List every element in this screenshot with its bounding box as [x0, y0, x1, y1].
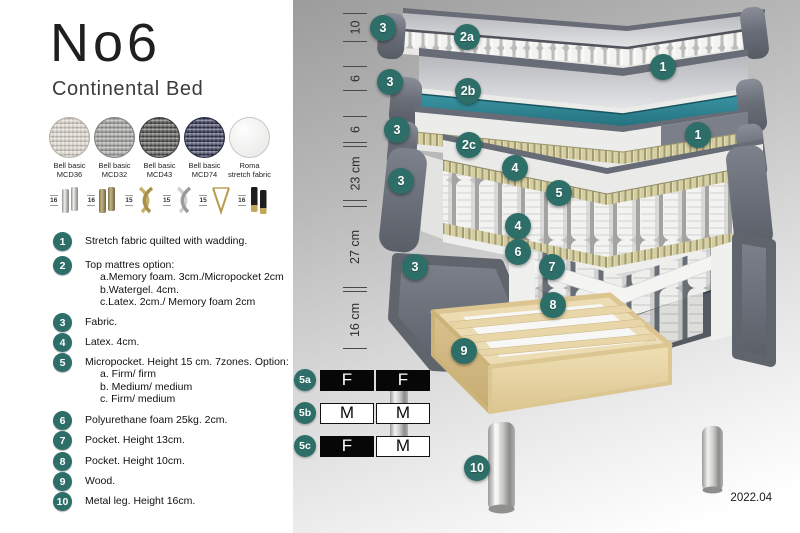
legend-number-badge: 7: [53, 431, 72, 450]
fabric-swatch-label: Bell basicMCD43: [143, 161, 175, 180]
leg-option: 15: [197, 185, 235, 215]
firmness-cell: F: [376, 370, 430, 391]
silver-cylinder-leg-icon: [60, 185, 82, 215]
leg-height: 15: [163, 195, 171, 206]
fabric-swatch-circle: [184, 117, 225, 158]
leg-option: 16: [85, 185, 123, 215]
legend-item-5: 5 Micropocket. Height 15 cm. 7zones. Opt…: [53, 353, 289, 406]
fabric-swatch: Bell basicMCD36: [47, 117, 92, 180]
ruler-segment-23cm: 23 cm: [340, 146, 370, 201]
firmness-cell: F: [320, 436, 374, 457]
fabric-swatch: Bell basicMCD74: [182, 117, 227, 180]
callout-1-upper: 1: [650, 54, 676, 80]
firmness-row-5a: 5a F F: [294, 369, 430, 391]
ruler-segment-27cm: 27 cm: [340, 206, 370, 288]
ruler-segment-16cm: 16 cm: [340, 291, 370, 349]
fabric-swatch-circle: [139, 117, 180, 158]
callout-10: 10: [464, 455, 490, 481]
legend-number-badge: 9: [53, 472, 72, 491]
firmness-badge-5c: 5c: [294, 435, 316, 457]
callout-3-top: 3: [370, 15, 396, 41]
callout-5: 5: [546, 180, 572, 206]
callout-3-main: 3: [388, 168, 414, 194]
firmness-badge-5b: 5b: [294, 402, 316, 424]
leg-height: 16: [87, 195, 95, 206]
ruler-segment-6cm-a: 6: [340, 66, 370, 91]
fabric-swatch-circle: [94, 117, 135, 158]
callout-8: 8: [540, 292, 566, 318]
legend-text: Polyurethane foam 25kg. 2cm.: [85, 414, 227, 426]
legend-item-3: 3 Fabric.: [53, 313, 117, 332]
weave-texture: [50, 118, 89, 157]
page-subtitle: Continental Bed: [52, 78, 203, 101]
ruler-segment-10cm: 10: [340, 13, 370, 42]
front-leg: [488, 422, 515, 514]
legend-panel: No6 Continental Bed Bell basicMCD36 Bell…: [0, 0, 293, 533]
callout-7: 7: [539, 254, 565, 280]
legend-number-badge: 5: [53, 353, 72, 372]
callout-6: 6: [505, 239, 531, 265]
legend-number-badge: 6: [53, 411, 72, 430]
firmness-cells: F F: [320, 370, 430, 391]
fabric-swatch-label: Bell basicMCD32: [98, 161, 130, 180]
firmness-cells: M M: [320, 403, 430, 424]
leg-option: 15: [122, 185, 160, 215]
legend-text: Pocket. Height 13cm.: [85, 434, 185, 446]
legend-number-badge: 3: [53, 313, 72, 332]
fabric-swatches: Bell basicMCD36 Bell basicMCD32 Bell bas…: [47, 117, 272, 180]
leg-options: 16 16 15 15 15 16: [47, 185, 273, 215]
legend-item-1: 1 Stretch fabric quilted with wadding.: [53, 232, 247, 251]
weave-texture: [140, 118, 179, 157]
legend-text: Fabric.: [85, 316, 117, 328]
callout-1-lower: 1: [685, 122, 711, 148]
fabric-swatch-label: Romastretch fabric: [228, 161, 271, 180]
legend-item-6: 6 Polyurethane foam 25kg. 2cm.: [53, 411, 227, 430]
callout-3-watergel: 3: [377, 69, 403, 95]
firmness-cells: F M: [320, 436, 430, 457]
legend-text: Latex. 4cm.: [85, 336, 139, 348]
brass-cylinder-leg-icon: [97, 185, 119, 215]
fabric-swatch: Romastretch fabric: [227, 117, 272, 180]
legend-text: Stretch fabric quilted with wadding.: [85, 235, 247, 247]
legend-text: Top mattres option: a.Memory foam. 3cm./…: [85, 259, 284, 309]
weave-texture: [185, 118, 224, 157]
legend-item-4: 4 Latex. 4cm.: [53, 333, 139, 352]
leg-option: 16: [235, 185, 273, 215]
firmness-row-5b: 5b M M: [294, 402, 430, 424]
leg-height: 15: [199, 195, 207, 206]
firmness-badge-5a: 5a: [294, 369, 316, 391]
legend-text: Wood.: [85, 475, 115, 487]
callout-9: 9: [451, 338, 477, 364]
legend-item-2: 2 Top mattres option: a.Memory foam. 3cm…: [53, 256, 284, 309]
diagram-panel: 10 6 6 23 cm 27 cm 16 cm 3 3 3 3 3 2a 2b…: [293, 0, 800, 533]
page-title: No6: [50, 16, 161, 70]
legend-text: Pocket. Height 10cm.: [85, 455, 185, 467]
weave-texture: [230, 118, 269, 157]
legend-number-badge: 8: [53, 452, 72, 471]
legend-number-badge: 1: [53, 232, 72, 251]
legend-item-7: 7 Pocket. Height 13cm.: [53, 431, 185, 450]
callout-2c: 2c: [456, 132, 482, 158]
callout-2b: 2b: [455, 78, 481, 104]
legend-text: Micropocket. Height 15 cm. 7zones. Optio…: [85, 356, 289, 406]
fabric-swatch: Bell basicMCD43: [137, 117, 182, 180]
firmness-cell: F: [320, 370, 374, 391]
black-gold-cylinder-leg-icon: [248, 185, 270, 215]
firmness-cell: M: [376, 403, 430, 424]
fabric-swatch-circle: [49, 117, 90, 158]
legend-text: Metal leg. Height 16cm.: [85, 495, 195, 507]
legend-number-badge: 2: [53, 256, 72, 275]
weave-texture: [95, 118, 134, 157]
firmness-cell: M: [376, 436, 430, 457]
legend-item-10: 10 Metal leg. Height 16cm.: [53, 492, 195, 511]
legend-item-8: 8 Pocket. Height 10cm.: [53, 452, 185, 471]
callout-3-2c: 3: [384, 117, 410, 143]
leg-height: 16: [50, 195, 58, 206]
leg-height: 15: [125, 195, 133, 206]
fabric-swatch-label: Bell basicMCD36: [53, 161, 85, 180]
gold-hairpin-leg-icon: [209, 185, 233, 215]
leg-height: 16: [238, 195, 246, 206]
callout-2a: 2a: [454, 24, 480, 50]
legend-number-badge: 4: [53, 333, 72, 352]
fabric-swatch-circle: [229, 117, 270, 158]
firmness-row-5c: 5c F M: [294, 435, 430, 457]
firmness-cell: M: [320, 403, 374, 424]
callout-4-bottom: 4: [505, 213, 531, 239]
fabric-swatch: Bell basicMCD32: [92, 117, 137, 180]
bed-infographic: No6 Continental Bed Bell basicMCD36 Bell…: [0, 0, 800, 533]
legend-item-9: 9 Wood.: [53, 472, 115, 491]
legend-number-badge: 10: [53, 492, 72, 511]
leg-option: 16: [47, 185, 85, 215]
gold-twist-leg-icon: [135, 185, 157, 215]
ruler-segment-6cm-b: 6: [340, 116, 370, 143]
version-label: 2022.04: [730, 492, 772, 504]
right-leg: [702, 426, 723, 494]
fabric-swatch-label: Bell basicMCD74: [188, 161, 220, 180]
silver-twist-leg-icon: [173, 185, 195, 215]
leg-option: 15: [160, 185, 198, 215]
callout-3-base: 3: [402, 254, 428, 280]
callout-4-top: 4: [502, 155, 528, 181]
